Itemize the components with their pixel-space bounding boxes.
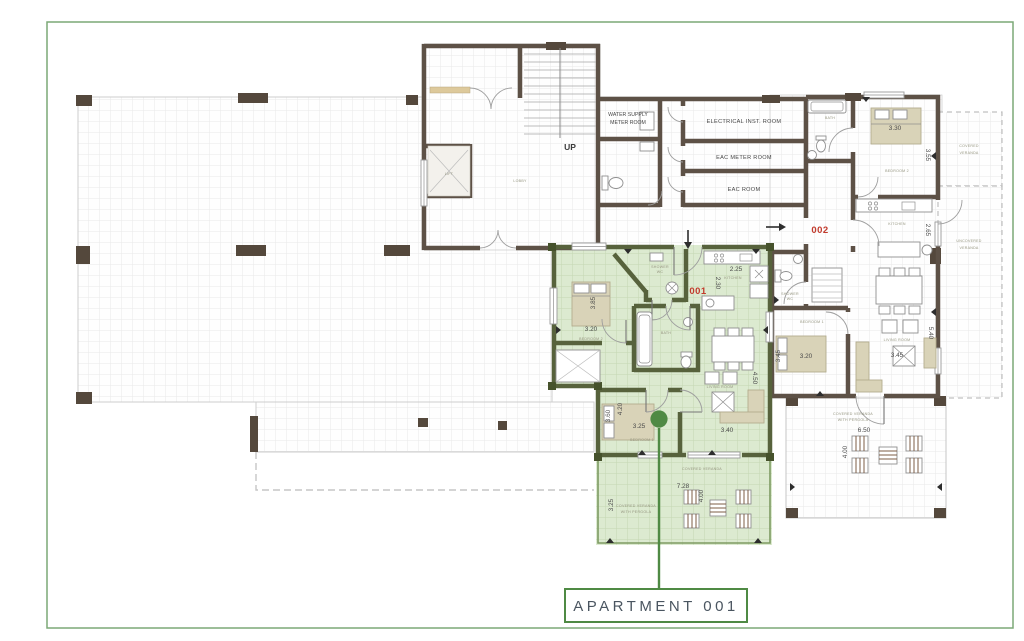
room-002-pergola-1: COVERED VERANDA bbox=[833, 412, 873, 416]
floor-plan-page: UP LIFT LOBBY WATER SUPPLY METER ROOM EL… bbox=[0, 0, 1024, 641]
eac-meter-room-label: EAC METER ROOM bbox=[716, 155, 772, 161]
dim-001-kitchen-w: 2.25 bbox=[730, 266, 743, 273]
uncovered-veranda-002 bbox=[938, 186, 1002, 398]
room-002-covered-veranda-1: COVERED bbox=[959, 144, 979, 148]
door-lintel bbox=[430, 87, 470, 93]
water-room-label-2: METER ROOM bbox=[610, 120, 646, 126]
water-room-label-1: WATER SUPPLY bbox=[608, 112, 648, 118]
electrical-room-label: ELECTRICAL INST. ROOM bbox=[707, 119, 782, 125]
room-002-kitchen: KITCHEN bbox=[888, 222, 906, 226]
dim-002-bed1-w: 3.20 bbox=[800, 353, 813, 360]
dim-001-veranda-h: 4.00 bbox=[698, 489, 705, 502]
apartment-001-marker[interactable] bbox=[650, 410, 667, 427]
dim-002-living-w: 3.45 bbox=[891, 352, 904, 359]
dim-001-living-h: 4.50 bbox=[751, 372, 758, 385]
room-001-shower-1: SHOWER bbox=[651, 265, 669, 269]
lobby-label: LOBBY bbox=[513, 179, 527, 183]
room-001-bedroom2: BEDROOM 2 bbox=[579, 337, 603, 341]
room-002-shower-2: WC bbox=[787, 297, 794, 301]
room-001-veranda: COVERED VERANDA bbox=[682, 467, 722, 471]
apartment-001-id: 001 bbox=[689, 286, 707, 297]
dim-001-veranda-w: 7.28 bbox=[677, 483, 690, 490]
eac-room-label: EAC ROOM bbox=[728, 187, 761, 193]
room-001-bedroom1: BEDROOM 1 bbox=[630, 438, 654, 442]
site-boundary-dashed-line bbox=[256, 452, 594, 490]
lift-label: LIFT bbox=[445, 172, 454, 176]
dim-001-pergola-h: 3.25 bbox=[608, 498, 615, 511]
apt002-wardrobe bbox=[812, 268, 842, 302]
apartment-002-id: 002 bbox=[811, 225, 828, 236]
room-002-living: LIVING ROOM bbox=[884, 338, 911, 342]
stairs-up-label: UP bbox=[564, 142, 576, 152]
room-001-bath: BATH bbox=[661, 331, 671, 335]
dim-002-pergola-w: 6.50 bbox=[858, 427, 871, 434]
dim-001-living-w: 3.40 bbox=[721, 427, 734, 434]
room-002-pergola-2: WITH PERGOLA bbox=[838, 418, 869, 422]
room-002-covered-veranda-2: VERANDA bbox=[959, 151, 978, 155]
lift-shaft bbox=[428, 146, 470, 196]
floor-plan-drawing: UP LIFT LOBBY WATER SUPPLY METER ROOM EL… bbox=[0, 0, 1024, 641]
core-lobby-region bbox=[422, 44, 808, 250]
room-001-pergola-1: COVERED VERANDA bbox=[616, 504, 656, 508]
dim-001-kitchen-h: 2.30 bbox=[714, 277, 721, 290]
room-002-bedroom1: BEDROOM 1 bbox=[800, 320, 824, 324]
dim-002-kitchen-h: 2.65 bbox=[924, 224, 931, 237]
dim-001-bed1-w: 3.25 bbox=[633, 423, 646, 430]
dim-001-bed1-d1: 3.60 bbox=[605, 409, 612, 422]
room-002-shower-1: SHOWER bbox=[781, 292, 799, 296]
dim-001-bed1-d2: 4.20 bbox=[617, 402, 624, 415]
dim-002-bed2-w: 3.30 bbox=[889, 125, 902, 132]
dim-001-bed2-w: 3.20 bbox=[585, 326, 598, 333]
dim-002-living-h: 5.40 bbox=[927, 327, 934, 340]
room-001-pergola-2: WITH PERGOLA bbox=[621, 510, 652, 514]
room-001-living: LIVING ROOM bbox=[707, 385, 734, 389]
room-001-shower-2: WC bbox=[657, 270, 664, 274]
room-002-uncovered-veranda-1: UNCOVERED bbox=[956, 239, 981, 243]
dim-002-bed1-h: 3.45 bbox=[775, 349, 782, 362]
callout-label: APARTMENT 001 bbox=[573, 598, 739, 615]
dim-002-bed2-h: 3.55 bbox=[924, 149, 931, 162]
room-002-bedroom2: BEDROOM 2 bbox=[885, 169, 909, 173]
room-002-bath: BATH bbox=[825, 116, 835, 120]
covered-veranda-002 bbox=[938, 112, 1002, 186]
dim-001-bed2-h: 3.85 bbox=[590, 296, 597, 309]
room-002-uncovered-veranda-2: VERANDA bbox=[959, 246, 978, 250]
room-001-kitchen: KITCHEN bbox=[724, 276, 742, 280]
dim-002-pergola-h: 4.00 bbox=[842, 445, 849, 458]
